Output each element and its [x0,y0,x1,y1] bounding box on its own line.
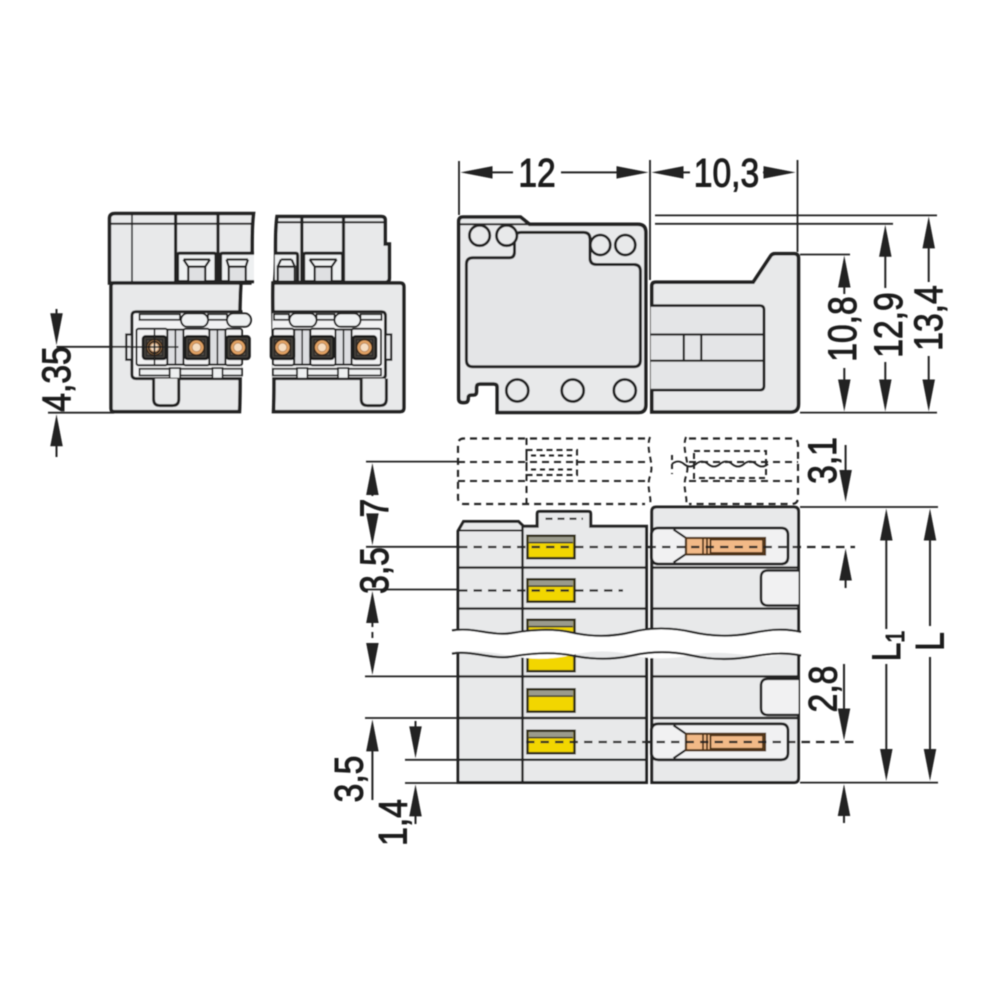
svg-text:12,9: 12,9 [866,292,910,357]
svg-text:3,1: 3,1 [800,437,844,484]
svg-text:12: 12 [518,151,555,195]
svg-text:10,8: 10,8 [820,296,864,361]
svg-text:L: L [908,632,952,651]
svg-text:2,8: 2,8 [801,666,845,713]
svg-text:13,4: 13,4 [906,285,950,350]
svg-text:10,3: 10,3 [694,151,759,195]
svg-text:1,4: 1,4 [371,799,415,846]
svg-text:4,35: 4,35 [34,346,78,411]
svg-text:3,5: 3,5 [327,756,371,803]
svg-text:3,5: 3,5 [352,547,396,594]
